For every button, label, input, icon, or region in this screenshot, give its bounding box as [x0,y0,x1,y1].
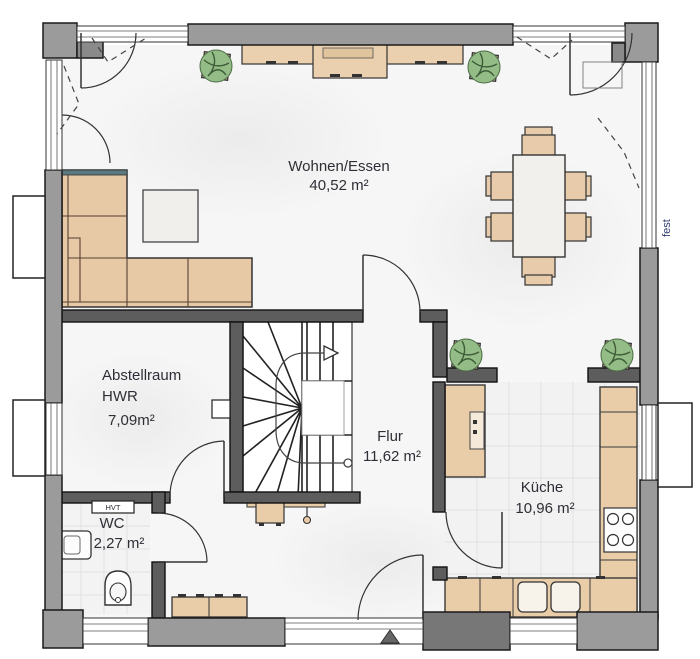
room-label-storage-2: HWR [102,388,138,405]
plant [450,339,482,371]
room-label-kitchen: Küche [521,479,564,496]
dining-table [513,155,565,257]
floor-plan-page: HVT Wohnen/Essen 40,52 m² Abstellraum HW… [0,0,700,659]
room-label-living: Wohnen/Essen [288,158,389,175]
room-area-living: 40,52 m² [309,177,368,194]
exterior-box-left-upper [13,196,45,278]
utility-panel-label: HVT [106,503,121,512]
window-entrance-sidelight [285,618,423,644]
coffee-table [143,190,198,242]
room-area-wc: 2,27 m² [94,535,145,552]
room-label-storage: Abstellraum [102,367,181,384]
staircase [243,322,352,497]
window-left-lower [46,403,62,475]
window-kitchen-bottom [510,618,577,644]
cooktop [604,508,637,552]
exterior-box-right [658,403,692,487]
wall-mounted-box [212,400,230,418]
window-wc [83,618,148,644]
window-left-upper [46,60,62,170]
exterior-box-left-lower [13,400,45,476]
stair-landing [302,381,344,435]
room-label-wc: WC [100,515,125,532]
toilet [105,571,131,605]
window-top-right [513,26,625,42]
floor-plan: HVT Wohnen/Essen 40,52 m² Abstellraum HW… [0,0,700,659]
plant [601,339,633,371]
corner-bottom-right [577,612,658,650]
hall-bench [172,594,247,617]
room-label-hall: Flur [377,428,403,445]
room-area-kitchen: 10,96 m² [515,500,574,517]
corner-top-right [625,23,658,62]
corner-bottom-left [43,610,83,648]
corner-top-left [43,23,77,58]
window-right-fixed [642,62,656,248]
plant [468,51,500,83]
fixed-window-label: fest [661,219,673,237]
plant [200,50,232,82]
window-kitchen-right [642,405,656,480]
room-area-hall: 11,62 m² [363,448,421,465]
utility-panel: HVT [92,501,134,513]
room-area-storage: 7,09m² [108,412,155,429]
